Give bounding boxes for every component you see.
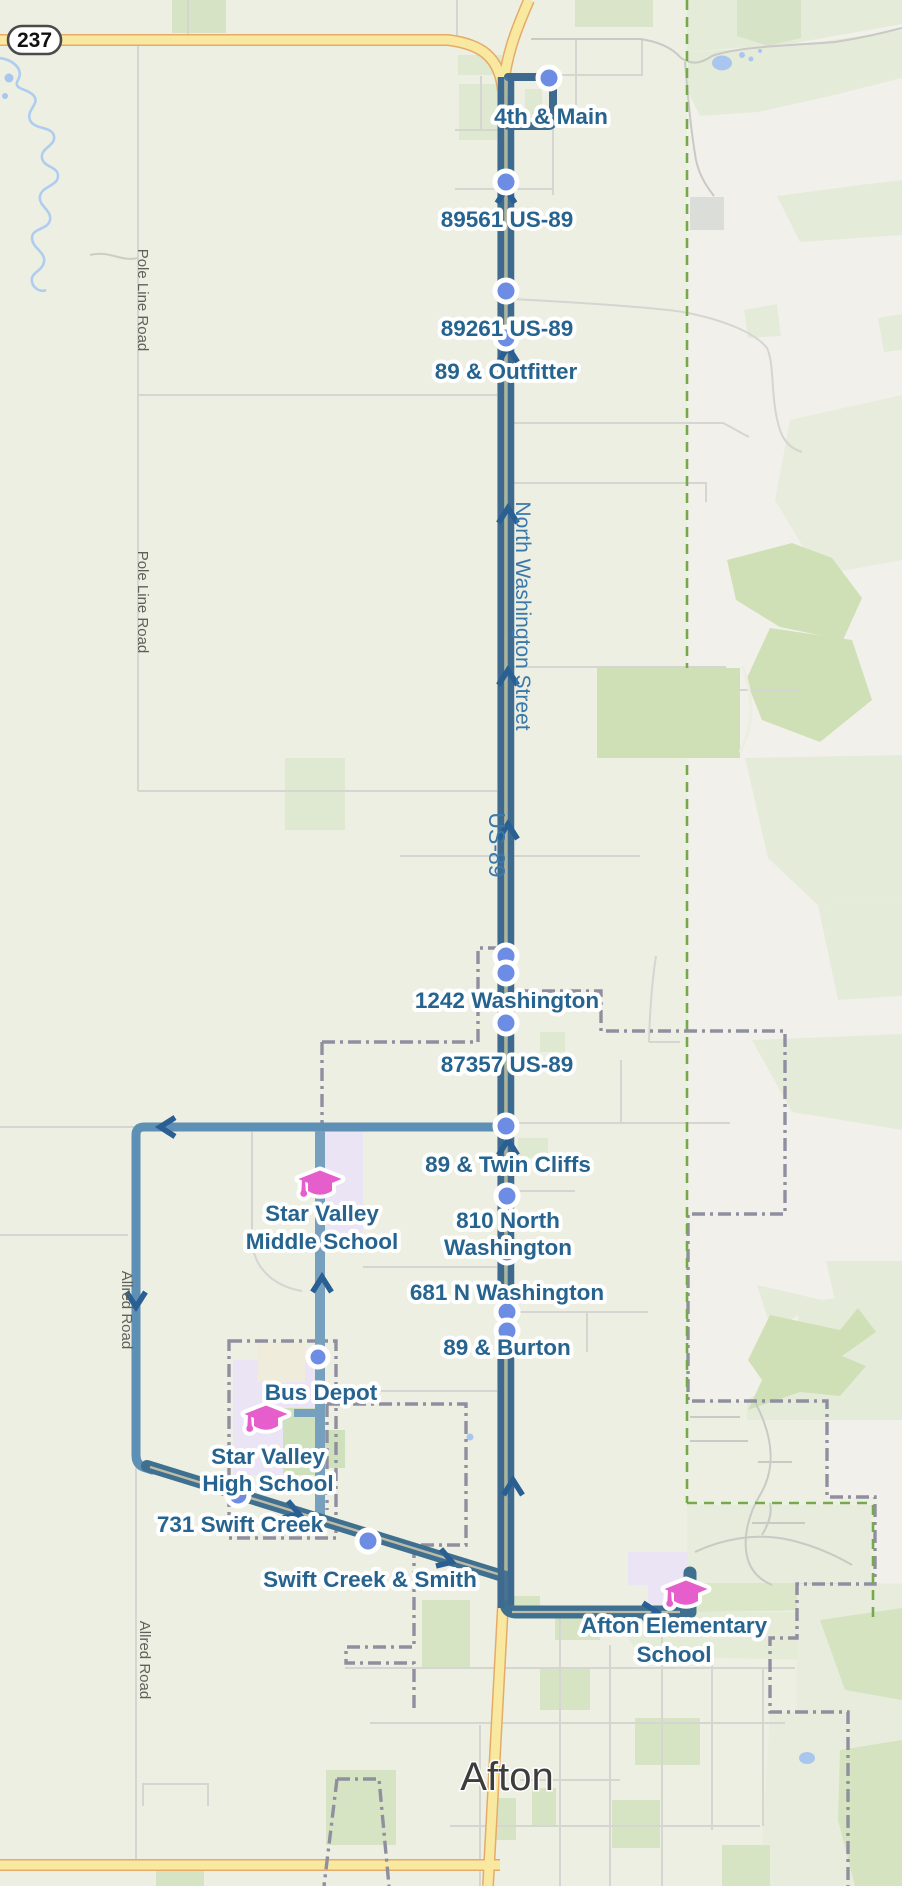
svg-text:89 & Burton: 89 & Burton [443,1335,571,1360]
svg-text:Swift Creek & Smith: Swift Creek & Smith [263,1567,477,1592]
svg-text:89261 US-89: 89261 US-89 [441,316,574,341]
svg-text:Star Valley: Star Valley [211,1444,325,1469]
svg-text:1242 Washington: 1242 Washington [415,988,599,1013]
svg-text:681 N Washington: 681 N Washington [410,1280,604,1305]
svg-text:Afton: Afton [460,1755,553,1799]
svg-text:US-89: US-89 [484,812,510,877]
svg-text:Star Valley: Star Valley [265,1201,379,1226]
svg-text:Afton Elementary: Afton Elementary [581,1613,768,1638]
svg-text:High School: High School [202,1471,333,1496]
svg-text:89 & Twin Cliffs: 89 & Twin Cliffs [425,1152,591,1177]
svg-text:School: School [636,1642,711,1667]
svg-text:731 Swift Creek: 731 Swift Creek [157,1512,324,1537]
svg-text:87357 US-89: 87357 US-89 [441,1052,574,1077]
svg-text:Allred Road: Allred Road [136,1621,153,1699]
svg-text:Pole Line Road: Pole Line Road [134,249,151,352]
svg-text:Washington: Washington [444,1235,572,1260]
svg-text:89 & Outfitter: 89 & Outfitter [435,359,578,384]
svg-text:237: 237 [17,29,52,52]
svg-text:89561 US-89: 89561 US-89 [441,207,574,232]
svg-text:Allred Road: Allred Road [118,1271,135,1349]
svg-text:Bus Depot: Bus Depot [265,1380,378,1405]
svg-text:810 North: 810 North [456,1208,560,1233]
svg-text:4th & Main: 4th & Main [494,104,608,129]
svg-text:North Washington Street: North Washington Street [511,501,534,730]
svg-text:Pole Line Road: Pole Line Road [134,551,151,654]
svg-text:Middle School: Middle School [246,1229,399,1254]
